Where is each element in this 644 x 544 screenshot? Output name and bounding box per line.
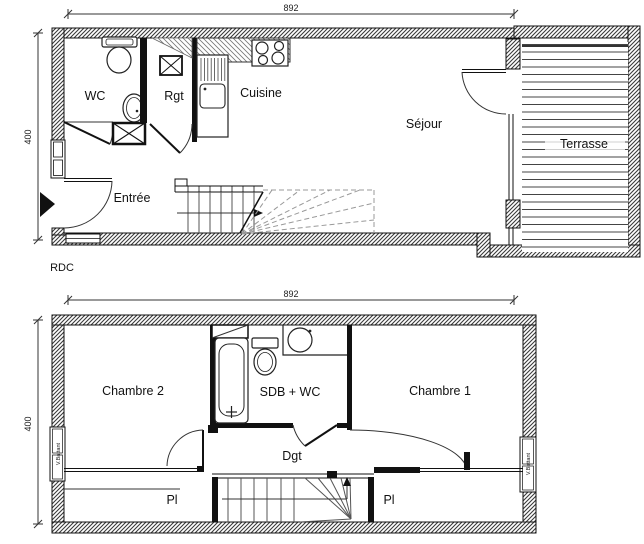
rgt-hatch-wedge [152, 38, 192, 58]
vanity-basin-icon [283, 325, 347, 355]
room-label-sejour: Séjour [406, 117, 442, 131]
room-label-chambre2: Chambre 2 [102, 384, 164, 398]
room-label-sdb: SDB + WC [260, 385, 321, 399]
rdc-plan: 892 400 [23, 3, 640, 274]
wall-sdb-chambre1 [347, 325, 352, 430]
etage-dim-height-label: 400 [23, 416, 33, 431]
rdc-bottom-vent-window [66, 234, 100, 243]
etage-dim-width-label: 892 [283, 289, 298, 299]
floor-plan-canvas: 892 400 [0, 0, 644, 544]
rdc-left-window [51, 140, 65, 178]
chambre2-wall-door [64, 430, 204, 472]
room-label-pl-left: Pl [166, 493, 177, 507]
sdb-vent-box [212, 325, 248, 338]
room-label-terrasse: Terrasse [560, 137, 608, 151]
terrace-door [462, 70, 506, 115]
rgt-door [150, 124, 192, 153]
rdc-entrance-door [64, 179, 112, 229]
sdb-door [293, 425, 337, 446]
rdc-stairs [175, 179, 374, 234]
rdc-floor-label: RDC [50, 262, 74, 274]
room-label-pl-right: Pl [383, 493, 394, 507]
kitchen-sink-icon [197, 55, 228, 137]
room-label-cuisine: Cuisine [240, 86, 282, 100]
room-label-entree: Entrée [114, 191, 151, 205]
rdc-dim-height-label: 400 [23, 129, 33, 144]
etage-right-window: V.Battant [520, 437, 536, 492]
toilet2-icon [252, 338, 278, 375]
toilet-icon [102, 37, 137, 73]
stove-icon [252, 40, 288, 66]
chambre1-wall-door [350, 430, 523, 473]
rgt-vent-icon [160, 56, 182, 75]
etage-plan: 892 400 V.Battant [23, 289, 536, 533]
room-label-chambre1: Chambre 1 [409, 384, 471, 398]
rdc-dim-width-label: 892 [283, 3, 298, 13]
bathtub-icon [215, 338, 248, 423]
etage-dimension-height [33, 316, 43, 528]
wall-rgt-cuisine [192, 38, 197, 142]
room-label-rgt: Rgt [164, 89, 184, 103]
wall-sdb-bottom [213, 423, 293, 428]
vent-shaft-icon [113, 123, 145, 144]
room-label-wc: WC [85, 89, 106, 103]
window-label-left: V.Battant [56, 442, 62, 465]
etage-left-window: V.Battant [50, 427, 65, 481]
window-label-right: V.Battant [526, 452, 532, 475]
entrance-arrow-icon [40, 192, 55, 217]
wall-corner-dgt [208, 425, 218, 433]
etage-stairs [212, 471, 374, 522]
wall-wc-rgt [140, 38, 147, 123]
room-label-dgt: Dgt [282, 449, 302, 463]
wc-door [64, 122, 113, 144]
floor-plan-document: 892 400 [0, 0, 644, 544]
wall-sdb-bottom-stub [337, 423, 352, 428]
